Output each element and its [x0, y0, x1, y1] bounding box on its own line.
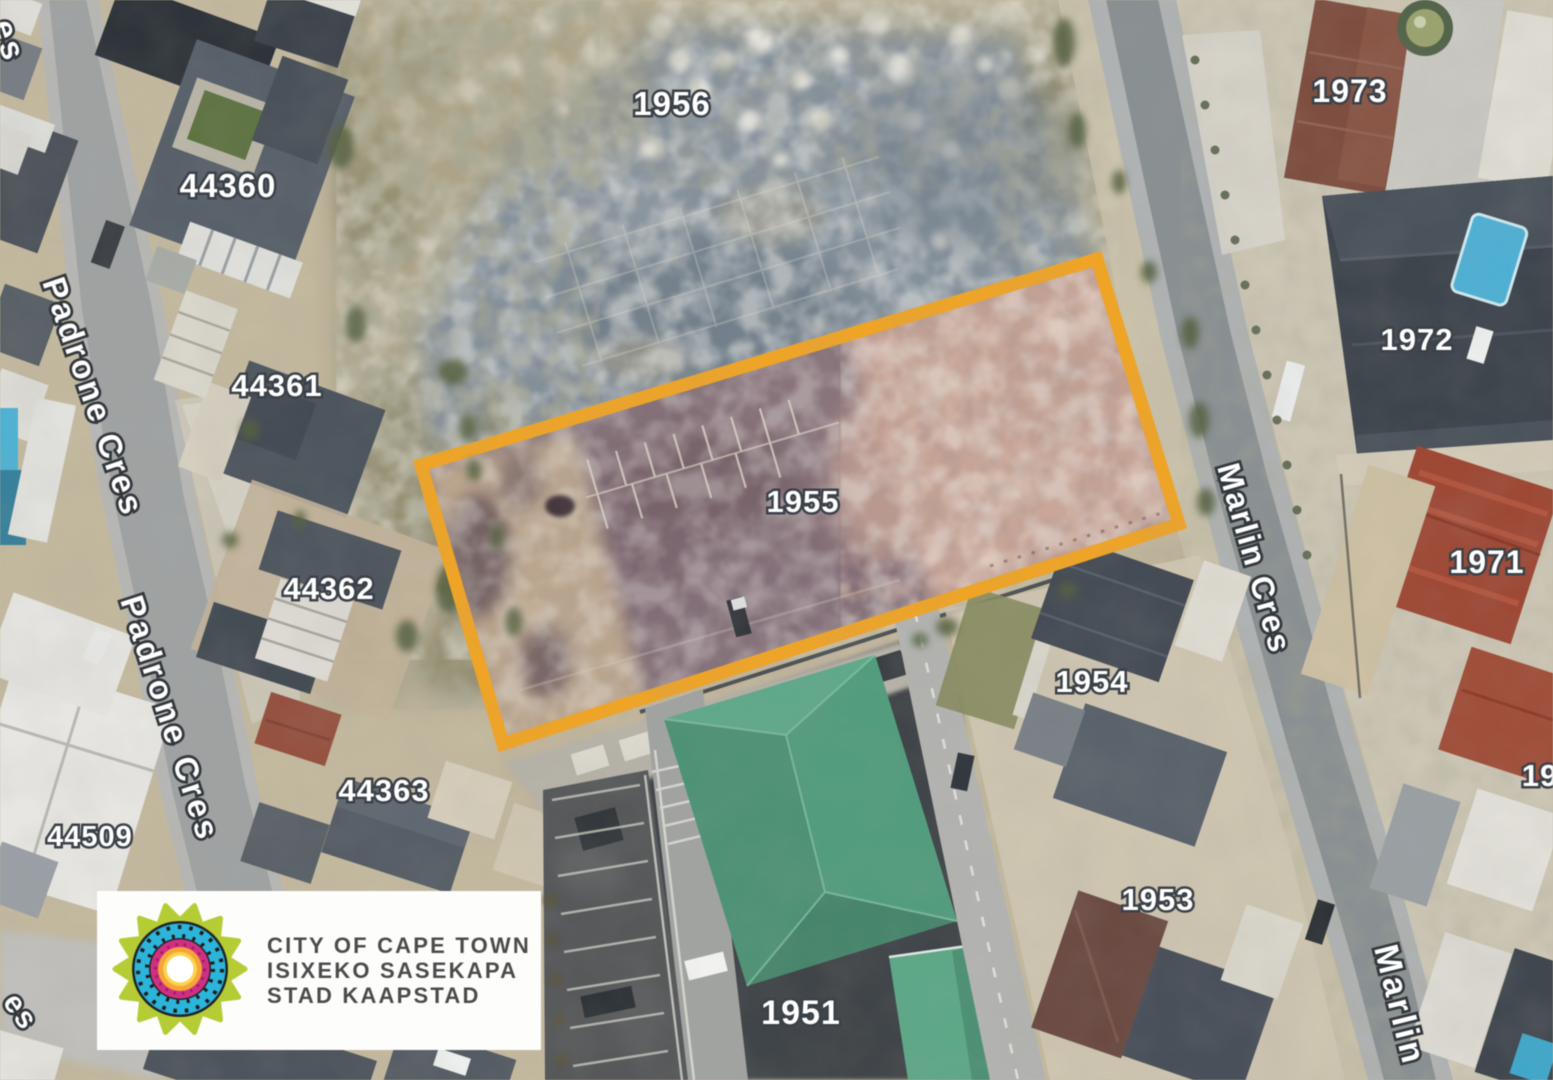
svg-text:1951: 1951: [761, 994, 841, 1032]
svg-text:1955: 1955: [767, 484, 840, 519]
svg-text:44361: 44361: [231, 368, 322, 403]
svg-text:1956: 1956: [633, 85, 710, 122]
svg-text:44360: 44360: [180, 167, 277, 204]
svg-text:44509: 44509: [47, 821, 133, 853]
svg-text:ISIXEKO SASEKAPA: ISIXEKO SASEKAPA: [267, 958, 518, 983]
svg-text:STAD KAAPSTAD: STAD KAAPSTAD: [267, 983, 481, 1008]
svg-text:19: 19: [1522, 758, 1553, 793]
svg-text:1971: 1971: [1449, 544, 1524, 580]
svg-text:CITY OF CAPE TOWN: CITY OF CAPE TOWN: [267, 933, 531, 958]
svg-text:1954: 1954: [1056, 664, 1129, 699]
svg-text:1953: 1953: [1122, 882, 1195, 917]
svg-text:1972: 1972: [1381, 322, 1454, 357]
svg-text:1973: 1973: [1312, 73, 1387, 109]
svg-text:44363: 44363: [338, 773, 429, 808]
svg-text:44362: 44362: [283, 571, 374, 606]
